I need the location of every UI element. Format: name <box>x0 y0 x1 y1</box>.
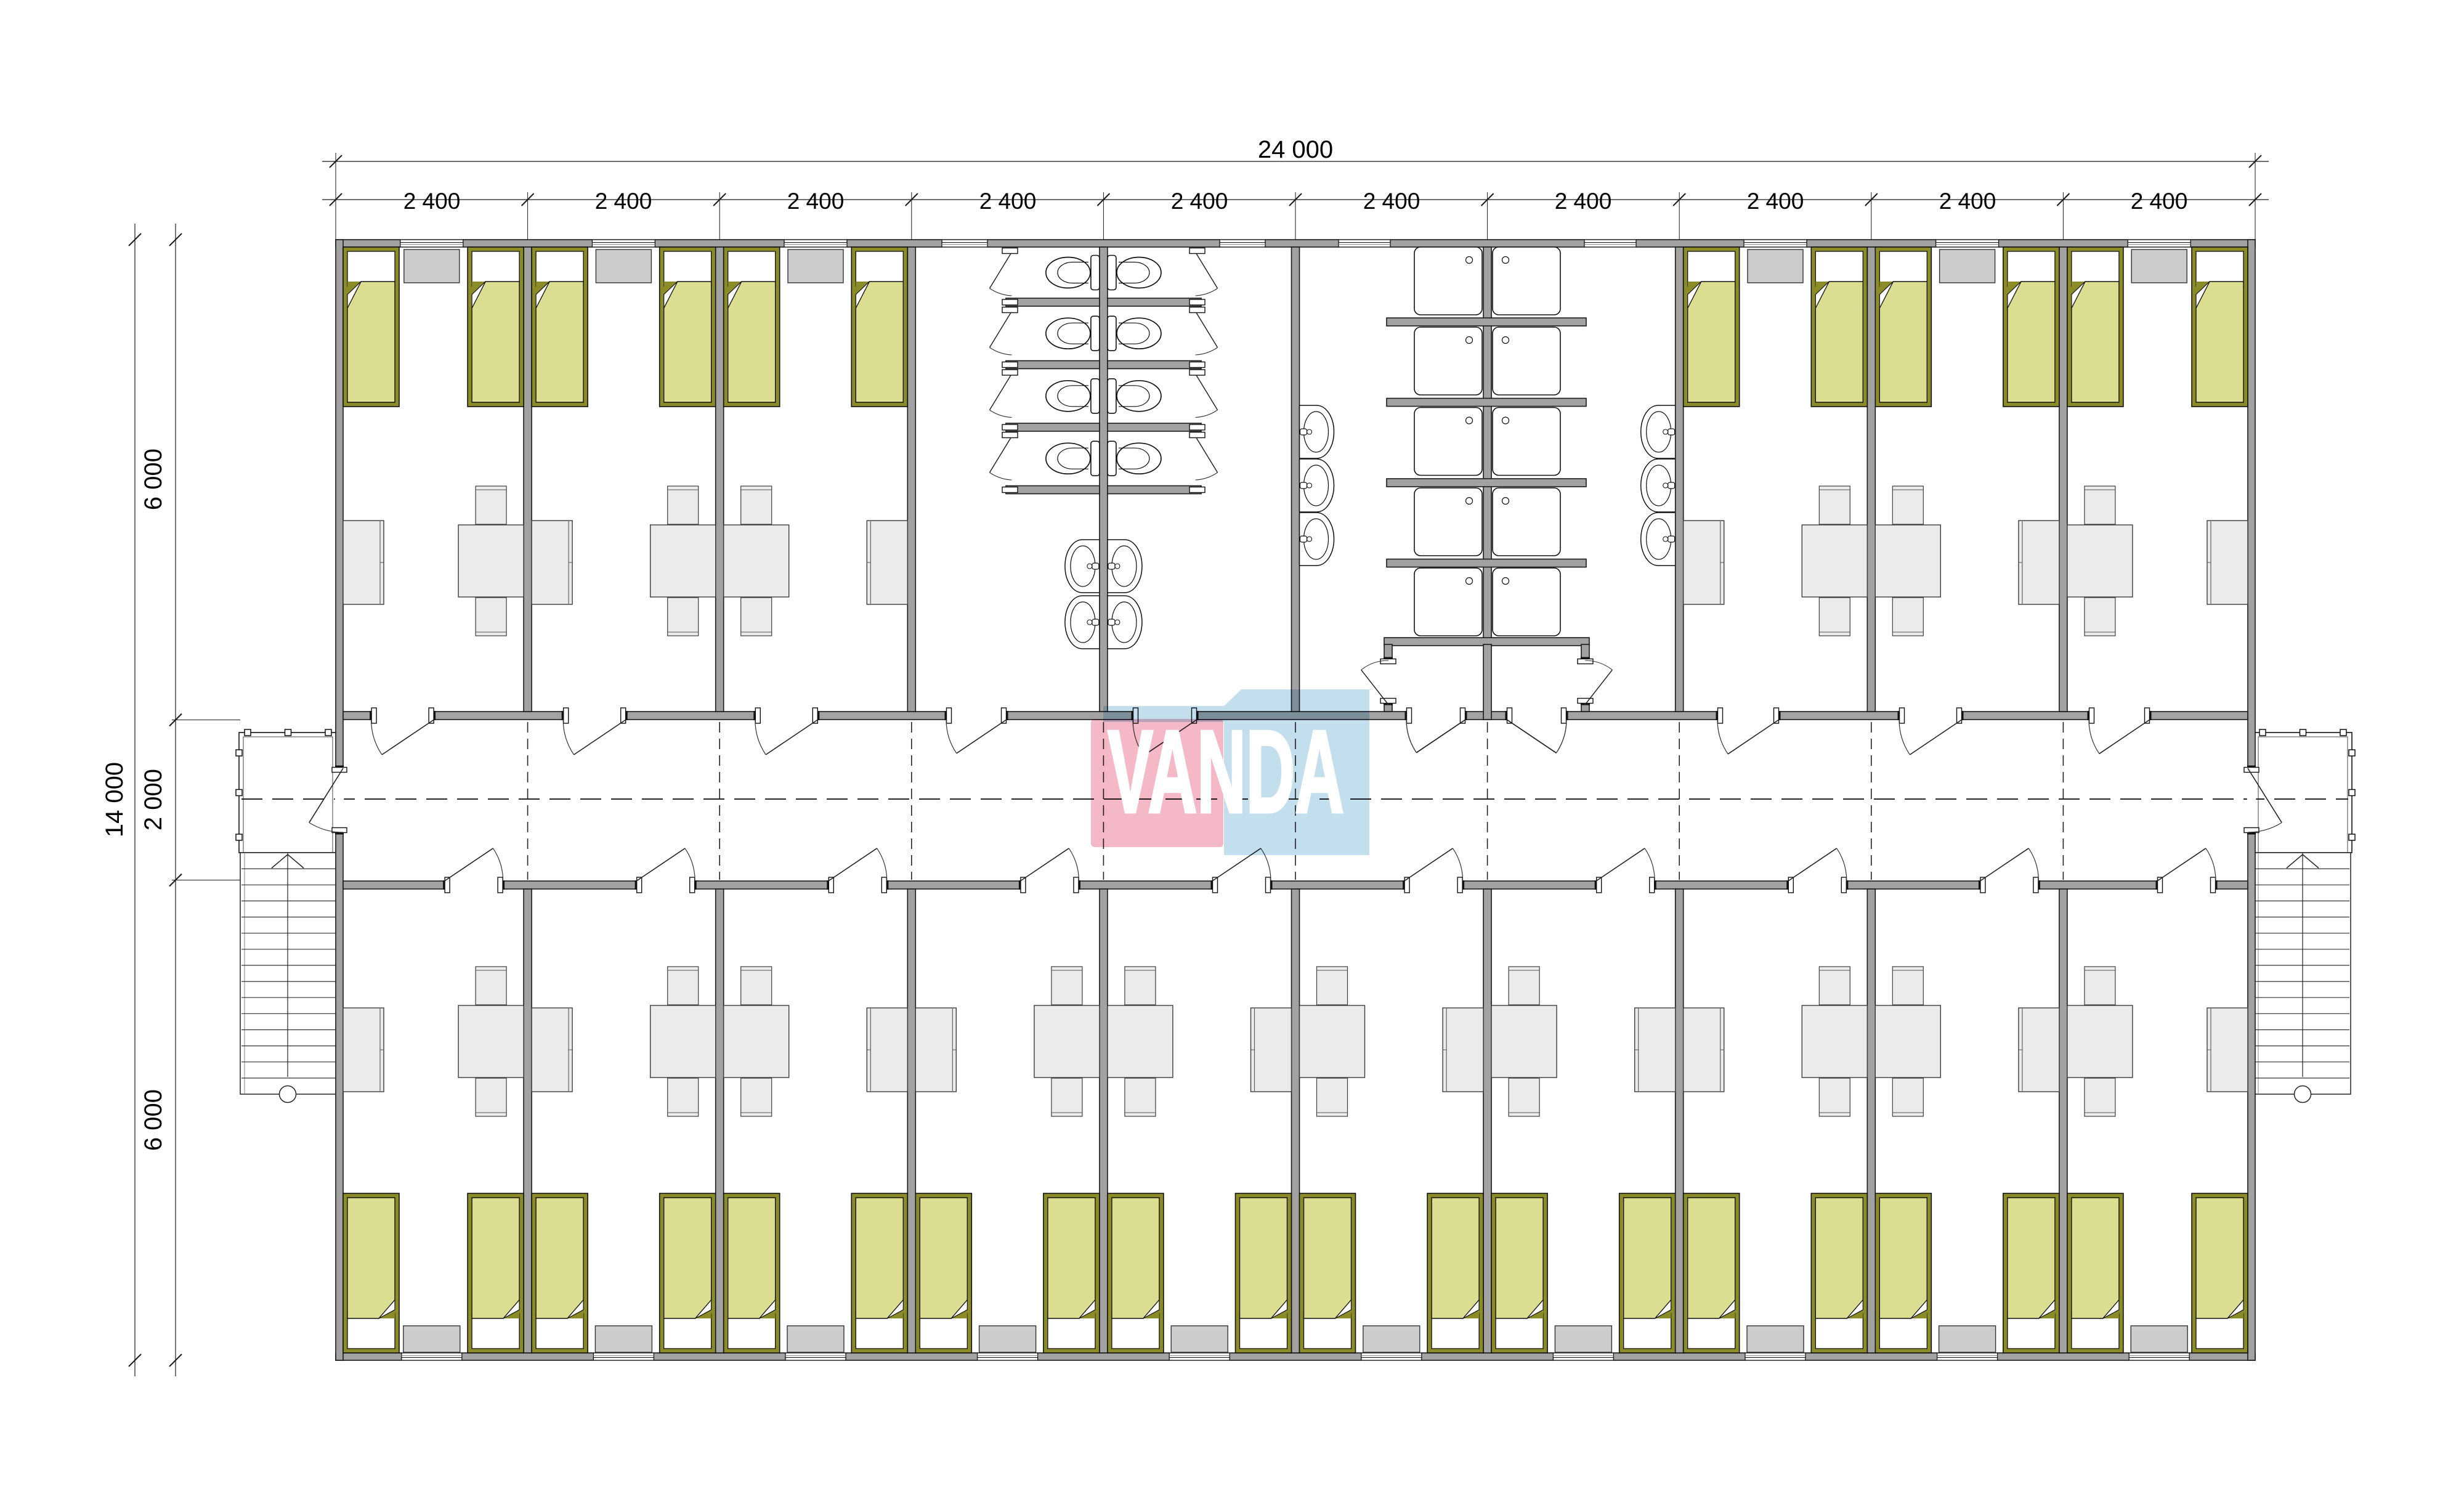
svg-text:2 400: 2 400 <box>979 189 1037 214</box>
svg-text:2 400: 2 400 <box>595 189 652 214</box>
svg-text:6 000: 6 000 <box>140 1089 167 1151</box>
svg-text:2 400: 2 400 <box>1171 189 1228 214</box>
svg-text:2 400: 2 400 <box>1555 189 1612 214</box>
svg-text:2 400: 2 400 <box>403 189 461 214</box>
svg-text:2 400: 2 400 <box>2131 189 2188 214</box>
svg-text:2 400: 2 400 <box>787 189 845 214</box>
svg-text:14 000: 14 000 <box>101 762 128 837</box>
svg-text:2 000: 2 000 <box>140 769 167 830</box>
svg-text:2 400: 2 400 <box>1363 189 1420 214</box>
svg-text:24 000: 24 000 <box>1258 136 1333 163</box>
svg-text:2 400: 2 400 <box>1747 189 1804 214</box>
svg-text:VANDA: VANDA <box>1108 706 1344 837</box>
svg-text:2 400: 2 400 <box>1939 189 1996 214</box>
svg-text:6 000: 6 000 <box>140 449 167 510</box>
